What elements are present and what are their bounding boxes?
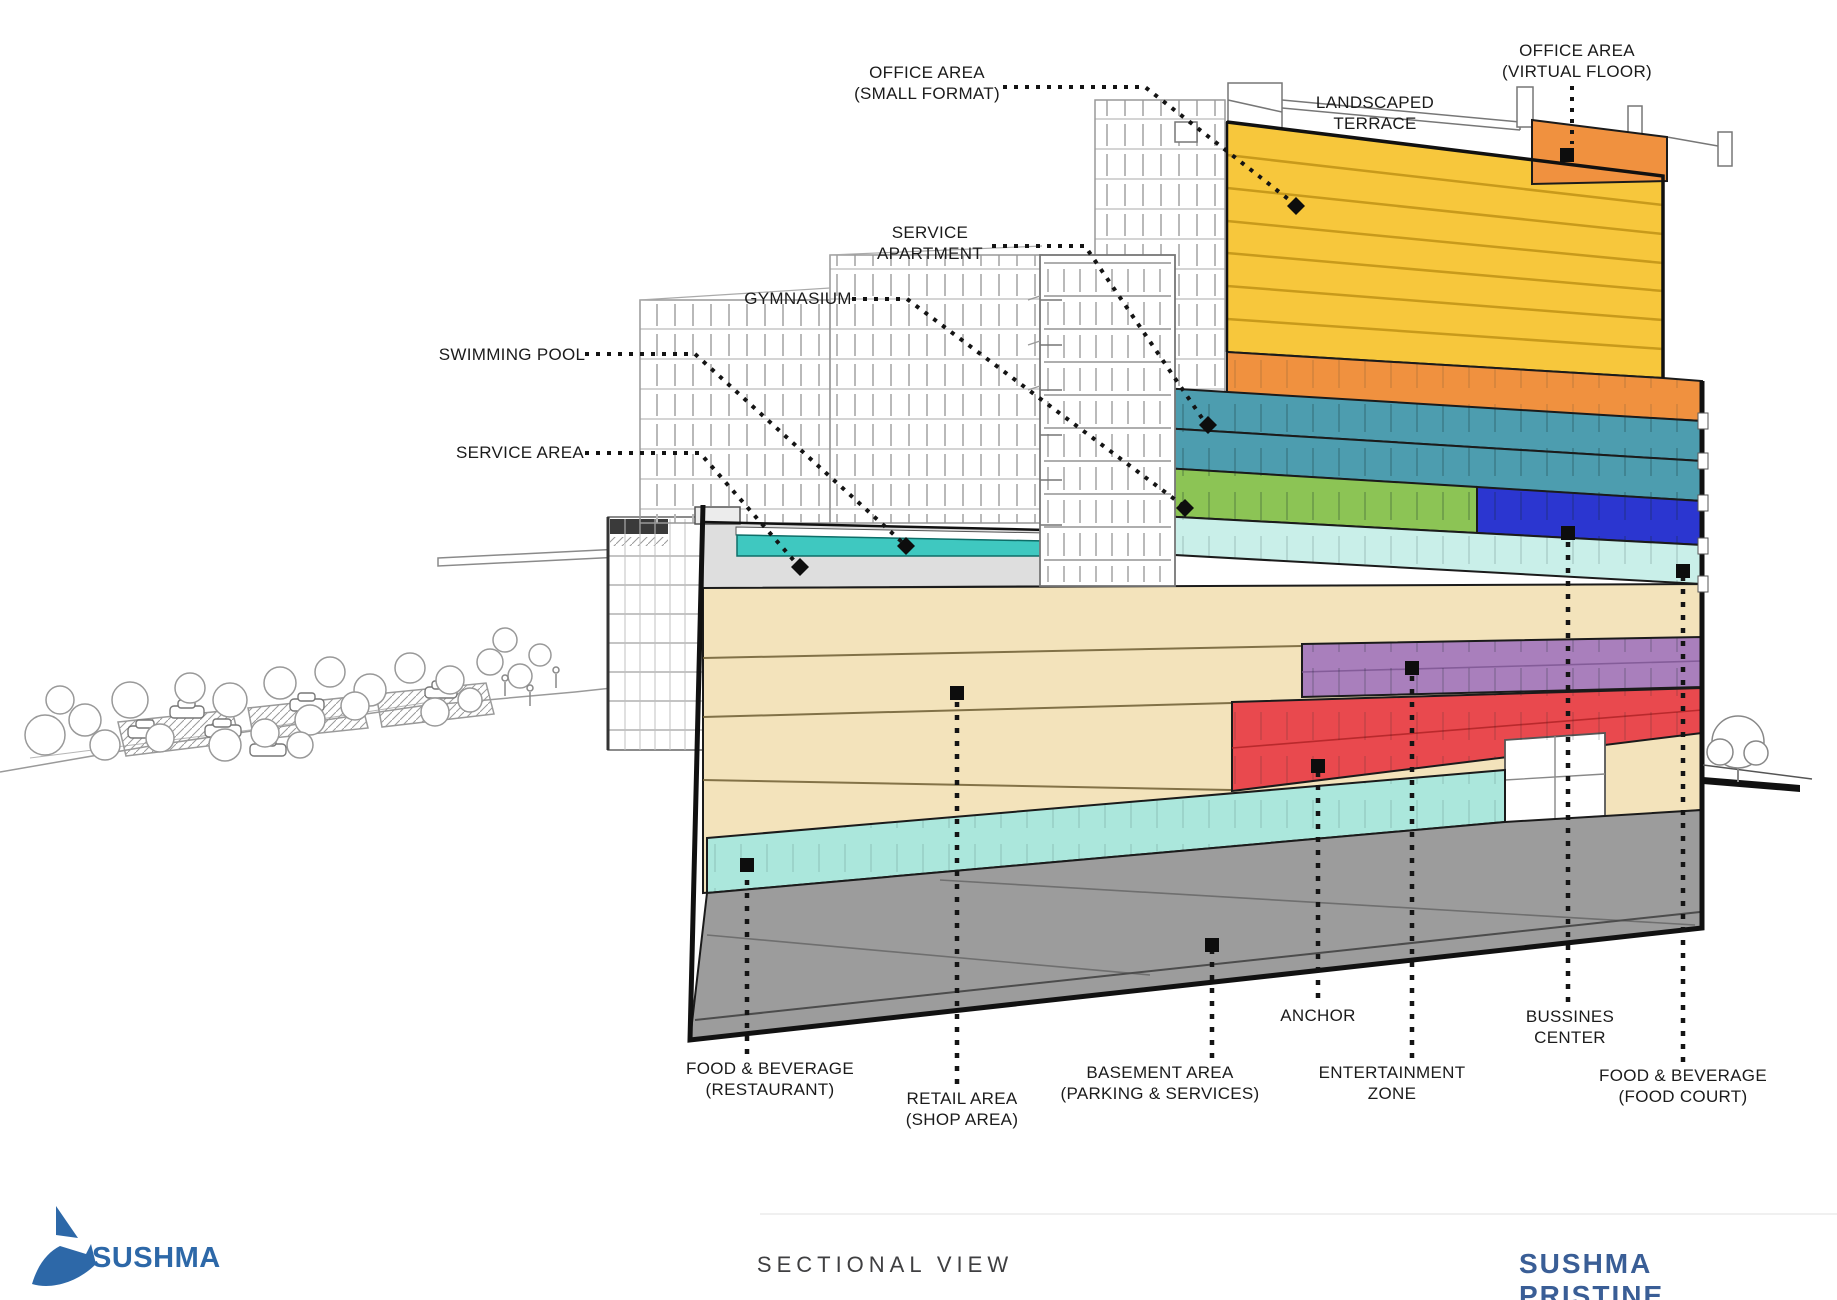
basement-marker [1205,938,1219,952]
entertainment-marker [1405,661,1419,675]
label-line: (VIRTUAL FLOOR) [1502,61,1652,82]
label-swimming-pool: SWIMMING POOL [439,344,586,365]
label-line: SERVICE AREA [456,442,584,463]
sectional-view-page: OFFICE AREA (SMALL FORMAT) OFFICE AREA (… [0,0,1837,1300]
label-line: OFFICE AREA [1502,40,1652,61]
background-tower-left [640,300,830,523]
office-virtual-floor-marker [1560,148,1574,162]
label-line: SERVICE [877,222,983,243]
label-line: FOOD & BEVERAGE [1599,1065,1767,1086]
sushma-logo-icon [30,1206,100,1290]
label-line: BASEMENT AREA [1060,1062,1259,1083]
label-line: FOOD & BEVERAGE [686,1058,854,1079]
bussines-marker [1561,526,1575,540]
label-food-beverage-restaurant: FOOD & BEVERAGE (RESTAURANT) [686,1058,854,1100]
label-line: APARTMENT [877,243,983,264]
label-line: RETAIL AREA [906,1088,1019,1109]
footer-brand-text: SUSHMA [92,1242,221,1275]
label-office-small-format: OFFICE AREA (SMALL FORMAT) [854,62,1000,104]
label-line: GYMNASIUM [744,288,852,309]
label-service-area: SERVICE AREA [456,442,584,463]
footer-project-name: SUSHMA PRISTINE [1519,1248,1731,1300]
right-ground [1703,716,1812,792]
label-line: (SMALL FORMAT) [854,83,1000,104]
label-line: ENTERTAINMENT [1319,1062,1466,1083]
label-bussines-center: BUSSINES CENTER [1526,1006,1614,1048]
restaurant-marker [740,858,754,872]
label-office-virtual-floor: OFFICE AREA (VIRTUAL FLOOR) [1502,40,1652,82]
retail-marker [950,686,964,700]
site-sketch [0,517,703,772]
label-line: BUSSINES [1526,1006,1614,1027]
label-line: (FOOD COURT) [1599,1086,1767,1107]
label-basement-area: BASEMENT AREA (PARKING & SERVICES) [1060,1062,1259,1104]
footer-view-title: SECTIONAL VIEW [757,1252,1013,1278]
label-line: OFFICE AREA [854,62,1000,83]
label-line: CENTER [1526,1027,1614,1048]
logo-sail-bottom [32,1244,96,1286]
label-line: LANDSCAPED [1316,92,1434,113]
label-food-beverage-food-court: FOOD & BEVERAGE (FOOD COURT) [1599,1065,1767,1107]
background-tower-mid [830,255,1042,523]
label-entertainment-zone: ENTERTAINMENT ZONE [1319,1062,1466,1104]
label-line: (SHOP AREA) [906,1109,1019,1130]
logo-sail-top [56,1206,78,1238]
label-retail-area: RETAIL AREA (SHOP AREA) [906,1088,1019,1130]
trees-sketch [25,628,551,761]
label-landscaped-terrace: LANDSCAPED TERRACE [1316,92,1434,134]
front-tower-sketch [1028,255,1175,586]
label-anchor: ANCHOR [1280,1005,1355,1026]
label-line: TERRACE [1316,113,1434,134]
ground-bar [1703,777,1800,792]
label-line: SWIMMING POOL [439,344,586,365]
side-building-sketch [608,517,703,750]
label-line: ZONE [1319,1083,1466,1104]
label-line: (PARKING & SERVICES) [1060,1083,1259,1104]
anchor-marker [1311,759,1325,773]
label-line: ANCHOR [1280,1005,1355,1026]
label-line: (RESTAURANT) [686,1079,854,1100]
label-gymnasium: GYMNASIUM [744,288,852,309]
footer-divider [760,1213,1837,1215]
foodcourt-marker [1676,564,1690,578]
label-service-apartment: SERVICE APARTMENT [877,222,983,264]
